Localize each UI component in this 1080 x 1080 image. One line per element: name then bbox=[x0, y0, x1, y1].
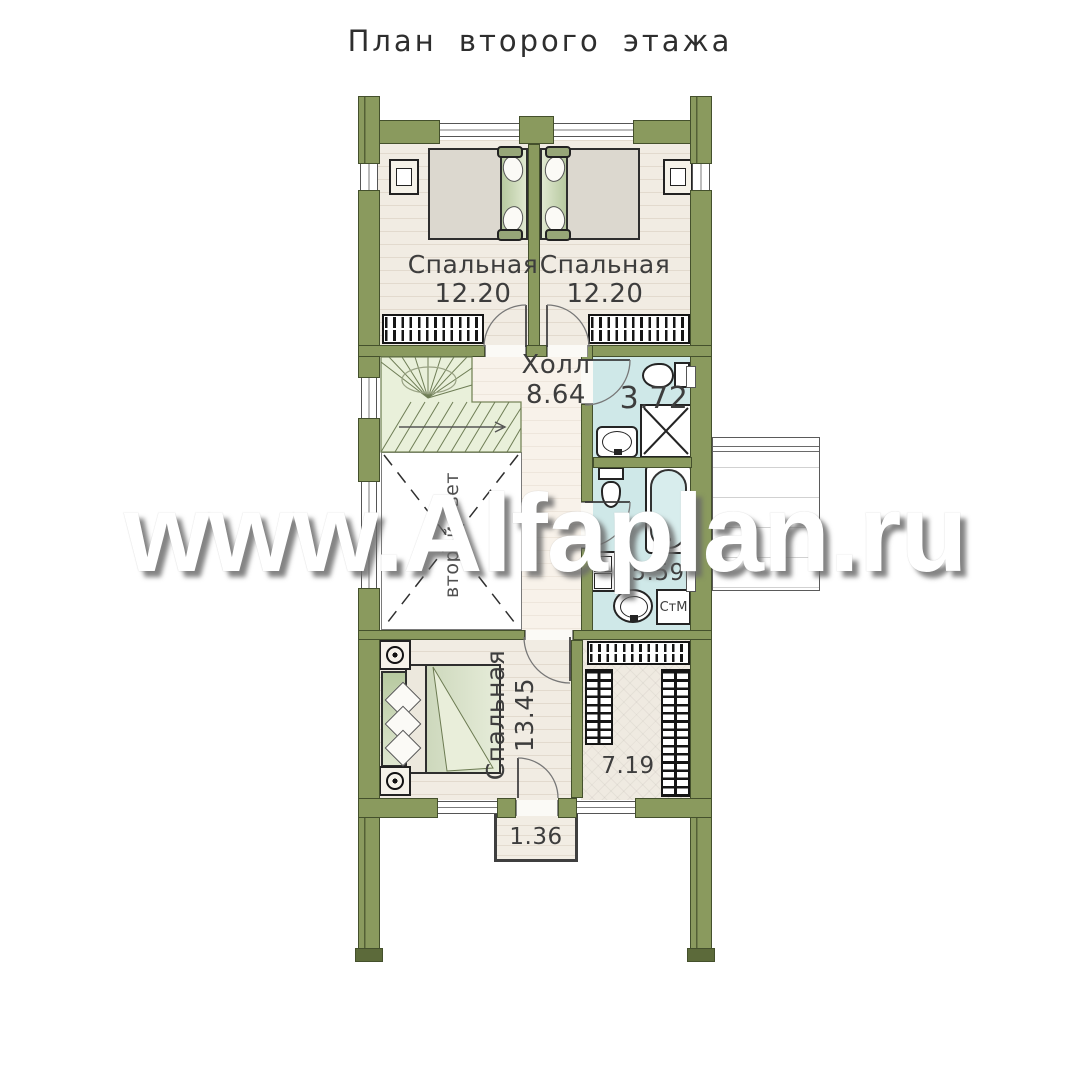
room-label-bedroom-lower: Спальная 13.45 bbox=[481, 637, 539, 793]
closet-rail bbox=[588, 314, 690, 344]
nightstand bbox=[663, 159, 693, 195]
wall-segment bbox=[573, 630, 712, 640]
room-name: Спальная bbox=[481, 637, 510, 793]
wall-segment bbox=[635, 798, 712, 818]
window bbox=[360, 164, 378, 190]
wall-post bbox=[690, 798, 712, 952]
balcony: 1.36 bbox=[494, 812, 578, 862]
wall-segment bbox=[358, 190, 380, 347]
page-title: План второго этажа bbox=[0, 24, 1080, 58]
wall-pier bbox=[519, 116, 554, 144]
headboard-shelf bbox=[545, 146, 571, 158]
closet-rail bbox=[587, 641, 690, 665]
headboard-shelf bbox=[497, 146, 523, 158]
balcony-area-label: 1.36 bbox=[509, 824, 562, 851]
bed-mattress bbox=[566, 148, 640, 240]
nightstand bbox=[379, 766, 411, 796]
wall-segment bbox=[358, 345, 485, 357]
sink-tap-icon bbox=[614, 449, 622, 455]
bedside-lamp-icon bbox=[386, 772, 404, 790]
sink-tap-icon bbox=[630, 615, 638, 621]
wall-pier bbox=[497, 798, 516, 818]
window bbox=[692, 164, 710, 190]
wall-segment bbox=[358, 798, 438, 818]
closet-rail bbox=[661, 669, 690, 797]
wall-segment bbox=[358, 630, 380, 800]
window bbox=[361, 378, 377, 418]
room-name: Холл bbox=[504, 350, 608, 380]
wall-pier bbox=[558, 798, 577, 818]
window bbox=[554, 123, 633, 137]
wall-segment bbox=[593, 457, 692, 468]
room-area: 8.64 bbox=[504, 380, 608, 410]
room-label-bedroom-top-left: Спальная 12.20 bbox=[400, 250, 546, 309]
floor-plan: План второго этажа bbox=[0, 0, 1080, 1080]
wall-post bbox=[358, 96, 380, 164]
room-area: 12.20 bbox=[400, 279, 546, 309]
wall-post-cap bbox=[355, 948, 383, 962]
balcony-door-opening bbox=[516, 800, 558, 816]
bed-mattress bbox=[428, 148, 502, 240]
headboard-shelf bbox=[497, 229, 523, 241]
room-label-bedroom-top-right: Спальная 12.20 bbox=[532, 250, 678, 309]
wall-post bbox=[358, 798, 380, 952]
room-label-hall: Холл 8.64 bbox=[504, 350, 608, 410]
nightstand bbox=[379, 640, 411, 670]
window bbox=[438, 801, 497, 814]
window bbox=[440, 123, 519, 137]
room-label-bathroom-upper: 3.72 bbox=[612, 382, 696, 417]
window bbox=[577, 801, 635, 814]
nightstand-top bbox=[396, 168, 412, 186]
room-name: Спальная bbox=[532, 250, 678, 279]
wall-segment bbox=[571, 640, 583, 798]
room-label-wardrobe: 7.19 bbox=[594, 753, 662, 780]
wall-post bbox=[690, 96, 712, 164]
closet-rail bbox=[585, 669, 613, 745]
headboard-shelf bbox=[545, 229, 571, 241]
watermark: www.Alfaplan.ru bbox=[124, 470, 967, 597]
nightstand bbox=[389, 159, 419, 195]
room-area: 13.45 bbox=[510, 637, 539, 793]
wall-post-cap bbox=[687, 948, 715, 962]
sink bbox=[596, 426, 638, 458]
room-name: Спальная bbox=[400, 250, 546, 279]
roof-ridge-lines bbox=[713, 446, 819, 452]
bedside-lamp-icon bbox=[386, 646, 404, 664]
closet-rail bbox=[382, 314, 484, 344]
room-area: 12.20 bbox=[532, 279, 678, 309]
wall-segment bbox=[528, 144, 540, 347]
washing-machine-label: СтМ bbox=[660, 600, 688, 615]
nightstand-top bbox=[670, 168, 686, 186]
wall-segment bbox=[690, 630, 712, 800]
